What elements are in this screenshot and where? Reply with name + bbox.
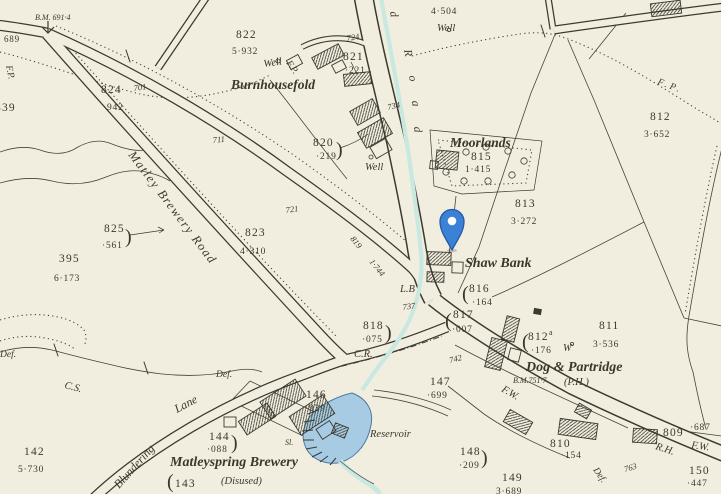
label-area-810: ·154 <box>561 451 582 461</box>
label-plot-809: 809 <box>663 427 684 439</box>
label-bm-top: B.M. 691·4 <box>35 13 71 22</box>
label-reservoir: Reservoir <box>369 429 412 440</box>
label-area-142: 5·730 <box>18 465 44 475</box>
label-w-well: W <box>563 343 573 354</box>
marsh-dots-a <box>0 315 86 346</box>
building-bottomright-1 <box>503 409 533 434</box>
label-plot-146: 146 <box>306 389 327 401</box>
road-top-right-fill <box>554 7 721 30</box>
label-area-144: ·088 <box>207 445 228 455</box>
label-road-819: 819 <box>348 234 364 251</box>
building-moorlands <box>435 150 459 170</box>
label-area-822: 5·932 <box>232 47 258 57</box>
label-matleyspring-brewery: Matleyspring Brewery <box>169 455 299 470</box>
pin-center-dot <box>448 217 457 226</box>
tree-icon <box>485 178 491 184</box>
brace-825: ) <box>125 226 132 248</box>
label-spot-689: 689 <box>4 34 20 44</box>
label-def-3: Def. <box>590 465 609 485</box>
label-def-2: Def. <box>215 369 232 380</box>
label-rh: R.H. <box>653 441 676 458</box>
building-dog-partridge-1 <box>501 316 519 342</box>
label-plot-810: 810 <box>550 438 571 450</box>
label-area-149: 3·689 <box>496 487 522 494</box>
brace-818: ) <box>385 322 392 344</box>
stream-upper-left-a <box>0 141 154 153</box>
brace-816: ( <box>462 283 469 305</box>
label-plot-825: 825 <box>104 223 125 235</box>
label-fp-left: F.P. <box>3 64 16 81</box>
label-area-395: 6·173 <box>54 274 80 284</box>
label-plot-815: 815 <box>471 151 492 163</box>
label-area-825: ·561 <box>102 241 123 251</box>
label-disused: (Disused) <box>221 476 262 487</box>
label-spot-763: 763 <box>623 461 638 474</box>
boundary-right-edge <box>684 318 721 326</box>
label-area-818: ·075 <box>362 335 383 345</box>
label-area-150: ·447 <box>687 479 708 489</box>
label-area-812: 3·652 <box>644 130 670 140</box>
building-shawbank-3 <box>452 262 463 273</box>
label-area-813: 3·272 <box>511 217 537 227</box>
label-cs: C.S. <box>63 380 83 395</box>
track-right-edge <box>687 148 721 429</box>
label-well-1: Well <box>263 57 283 70</box>
fence-south-of-road <box>455 345 628 428</box>
label-plot-395: 395 <box>59 253 80 265</box>
label-area-809: ·687 <box>690 423 711 433</box>
label-plot-150: 150 <box>689 465 710 477</box>
label-plot-142: 142 <box>24 446 45 458</box>
brace-148: ) <box>481 447 488 469</box>
building-shawbank-1 <box>427 252 451 266</box>
label-plot-148: 148 <box>460 446 481 458</box>
label-fw-road: F.W. <box>499 384 521 403</box>
label-blundering: Blundering <box>111 442 158 491</box>
label-plot-149: 149 <box>502 472 523 484</box>
label-well-2: Well <box>365 162 383 173</box>
label-plot-816: 816 <box>469 283 490 295</box>
label-plot-839: 839 <box>0 102 16 114</box>
label-plot-812a: 812 <box>528 331 549 343</box>
label-plot-811: 811 <box>599 320 619 332</box>
label-dog-partridge: Dog & Partridge <box>525 360 622 375</box>
road-letter-o: o <box>406 75 419 83</box>
label-plot-147: 147 <box>430 376 451 388</box>
label-fp-topright: F.P. <box>655 77 684 96</box>
building-brewery-3 <box>238 403 275 435</box>
label-def-left: Def. <box>0 349 16 360</box>
label-area-811: 3·536 <box>593 340 619 350</box>
label-area-815: 1·415 <box>465 165 491 175</box>
label-plot-824: 824 <box>101 84 122 96</box>
brace-820: ) <box>336 139 343 161</box>
tree-icon <box>461 178 467 184</box>
label-road-819-dist: 1·744 <box>367 257 387 279</box>
building-bottomright-4 <box>574 403 591 419</box>
label-spot-721: 721 <box>285 203 299 215</box>
building-small-solid <box>534 308 542 314</box>
label-area-820: ·219 <box>316 152 337 162</box>
building-820-1 <box>350 99 381 126</box>
map-pin[interactable] <box>440 210 464 253</box>
label-area-823: 4·310 <box>240 247 266 257</box>
label-plot-143: 143 <box>175 478 196 490</box>
building-144 <box>224 417 236 427</box>
tree-icon <box>521 158 527 164</box>
brace-144: ) <box>231 432 238 454</box>
label-plot-823: 823 <box>245 227 266 239</box>
label-spot-742: 742 <box>448 352 464 365</box>
label-lb: L.B <box>399 284 415 295</box>
label-area-148: ·209 <box>459 461 480 471</box>
building-shawbank-2 <box>427 272 444 283</box>
label-area-817: ·007 <box>452 325 473 335</box>
label-burnhousefold: Burnhousefold <box>230 77 315 92</box>
leader-825 <box>130 227 164 235</box>
label-plot-820: 820 <box>313 137 334 149</box>
label-area-147: ·699 <box>427 391 448 401</box>
footpath-top-right <box>412 33 721 124</box>
label-fw-bottomright: F.W. <box>690 440 710 454</box>
label-plot-812: 812 <box>650 111 671 123</box>
label-plot-813: 813 <box>515 198 536 210</box>
label-area-4504: 4·504 <box>431 7 457 17</box>
well-icon <box>369 155 373 159</box>
brace-817: ( <box>445 310 452 332</box>
label-sl: Sl. <box>285 438 293 447</box>
label-ph: (P.H.) <box>564 377 589 388</box>
label-plot-812a-sup: a <box>549 328 553 337</box>
label-plot-144: 144 <box>209 431 230 443</box>
building-bottomright-2 <box>558 418 598 439</box>
label-plot-822: 822 <box>236 29 257 41</box>
label-spot-724: 724 <box>346 31 361 43</box>
map-svg: B.M. 691·4 689 F.P. 839 824 ·942 701 711… <box>0 0 721 494</box>
label-spot-711: 711 <box>212 134 225 145</box>
label-well-3: Well <box>437 23 455 34</box>
label-bm-dog: B.M.751·7 <box>513 376 548 385</box>
label-spot-701: 701 <box>133 81 147 93</box>
road-letter-partial: d <box>387 10 400 18</box>
label-moorlands: Moorlands <box>449 135 511 150</box>
label-spot-737: 737 <box>402 300 417 312</box>
building-bottomright-3 <box>633 428 658 444</box>
label-area-816: ·164 <box>472 298 493 308</box>
track-right-edge-dots <box>685 146 717 314</box>
label-area-812a: ·176 <box>531 346 552 356</box>
label-shaw-bank: Shaw Bank <box>465 256 532 271</box>
label-area-146: ·939 <box>305 404 326 414</box>
label-plot-818: 818 <box>363 320 384 332</box>
label-plot-821: 821 <box>343 51 364 63</box>
label-fp-burnhousefold: F.P. <box>283 58 300 76</box>
tree-icon <box>509 172 515 178</box>
label-plot-817: 817 <box>453 309 474 321</box>
label-lane: Lane <box>171 392 200 416</box>
brace-143: ( <box>167 471 174 493</box>
road-letter-a: a <box>409 100 422 107</box>
building-burnhousefold-1 <box>312 44 345 70</box>
label-area-824: ·942 <box>103 103 124 113</box>
track-top-fill <box>158 0 207 68</box>
label-cr: C.R. <box>354 349 373 360</box>
label-area-821: ·221 <box>345 66 366 76</box>
map-canvas[interactable]: B.M. 691·4 689 F.P. 839 824 ·942 701 711… <box>0 0 721 494</box>
road-letter-d: d <box>411 126 424 133</box>
pin-body-icon[interactable] <box>440 210 464 251</box>
